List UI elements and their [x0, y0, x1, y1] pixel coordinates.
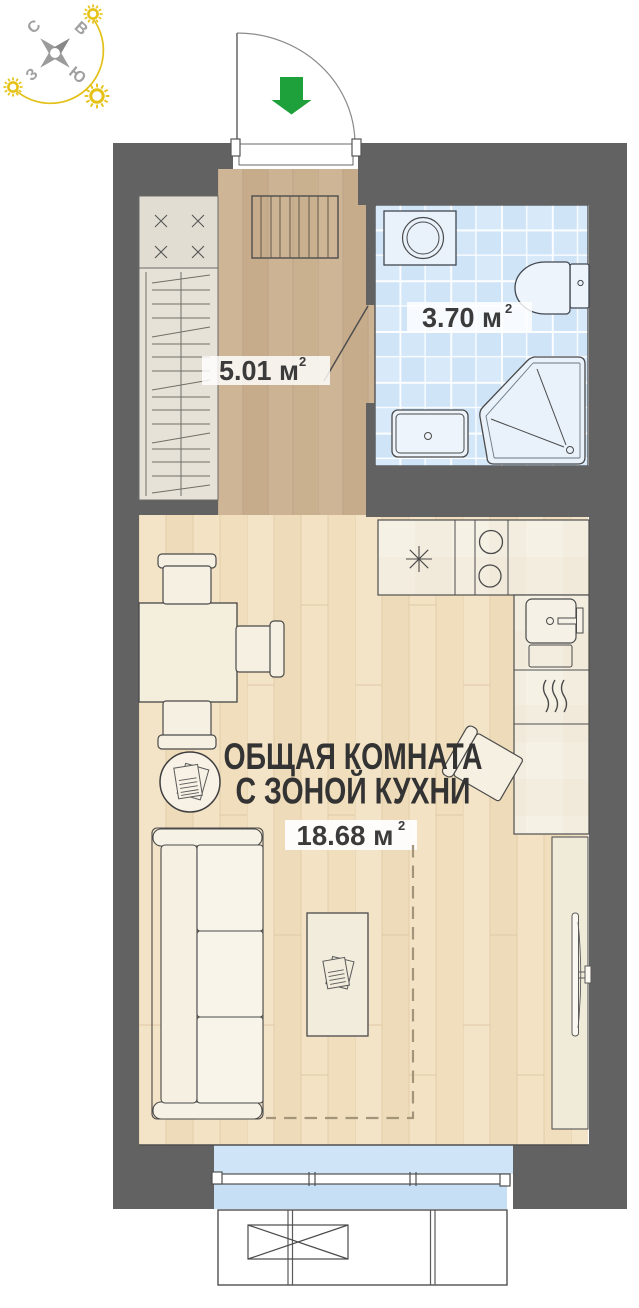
svg-text:18.68 м: 18.68 м	[297, 820, 394, 851]
svg-text:С ЗОНОЙ КУХНИ: С ЗОНОЙ КУХНИ	[236, 770, 471, 812]
svg-text:2: 2	[299, 354, 306, 369]
svg-text:5.01 м: 5.01 м	[219, 355, 299, 386]
svg-text:2: 2	[505, 301, 512, 316]
svg-text:2: 2	[398, 818, 405, 833]
svg-text:3.70 м: 3.70 м	[422, 302, 502, 333]
